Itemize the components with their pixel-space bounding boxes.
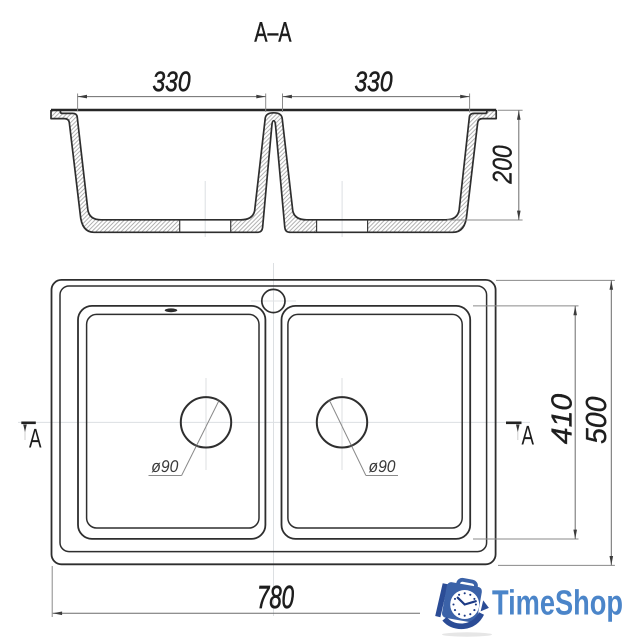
svg-text:A: A — [522, 421, 535, 451]
svg-text:200: 200 — [488, 145, 518, 184]
svg-text:330: 330 — [153, 66, 191, 97]
svg-text:780: 780 — [257, 579, 294, 615]
svg-text:410: 410 — [547, 394, 579, 445]
svg-text:A: A — [29, 424, 42, 454]
svg-text:ø90: ø90 — [369, 457, 396, 476]
svg-text:500: 500 — [581, 397, 613, 445]
svg-text:330: 330 — [355, 66, 393, 97]
svg-text:ø90: ø90 — [151, 457, 178, 476]
svg-text:A–A: A–A — [254, 16, 291, 47]
svg-text:TimeShop: TimeShop — [492, 584, 623, 623]
